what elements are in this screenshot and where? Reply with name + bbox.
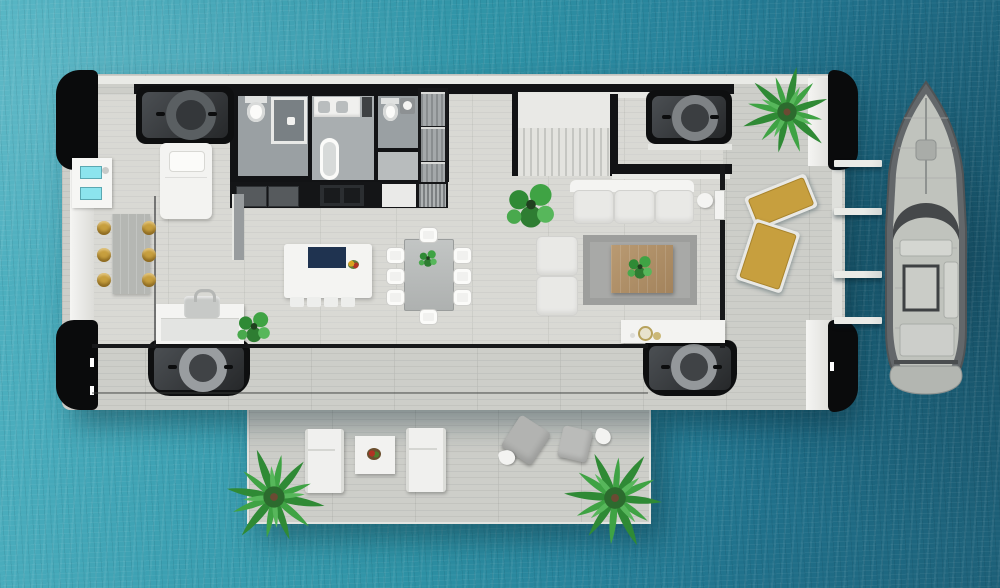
cyan-screen: [80, 166, 102, 179]
tech-unit-base-trim: [648, 144, 732, 150]
shower: [271, 97, 307, 144]
glass-wall-south: [92, 344, 648, 348]
hall-wall-face: [612, 174, 730, 179]
sink: [318, 101, 330, 113]
monstera-plant: [502, 178, 560, 236]
palm-tree: [734, 59, 840, 165]
cockpit-table: [904, 266, 938, 310]
appliance: [268, 186, 299, 207]
cabinet-basin: [161, 318, 239, 341]
hatch-circle: [671, 344, 717, 390]
closet-unit: [421, 127, 445, 161]
vanity: [314, 97, 360, 117]
palm-tree: [556, 439, 674, 557]
pillow: [169, 151, 205, 172]
hatch-handle: [168, 365, 177, 369]
hall-nook: [378, 152, 418, 180]
centerpiece-plant: [417, 248, 439, 270]
hall-wall-south: [610, 164, 732, 174]
daybed-mattress: [165, 177, 207, 214]
bar-stool: [97, 221, 111, 235]
bow-hatch: [916, 140, 936, 160]
chaise-cushion: [536, 236, 578, 276]
bar-stool: [142, 273, 156, 287]
pontoon-marker: [90, 358, 94, 367]
swim-platform: [890, 366, 962, 394]
east-edge-trim: [832, 166, 842, 322]
control-panel: [72, 158, 112, 208]
sofa-cushion: [573, 190, 614, 224]
hatch-handle: [208, 112, 217, 116]
toilet: [247, 102, 265, 122]
bathroom-left: [238, 96, 308, 176]
deck-seam: [92, 392, 648, 394]
glass-door: [714, 190, 725, 220]
island-stool: [290, 297, 304, 307]
tech-unit-bottom-left: [148, 340, 250, 396]
potted-plant: [234, 308, 274, 348]
hatch-handle: [662, 115, 671, 119]
burner: [344, 188, 360, 203]
sink: [400, 98, 415, 114]
dining-chair: [386, 247, 405, 264]
bar-stool: [142, 248, 156, 262]
bathtub: [320, 138, 339, 180]
dining-chair: [386, 289, 405, 306]
side-table: [697, 193, 713, 208]
fruit-bowl: [348, 260, 359, 269]
sofa-cushion: [614, 190, 655, 224]
decor-bowl: [653, 332, 661, 340]
hatch-handle: [224, 365, 233, 369]
panel-dial: [102, 167, 109, 174]
cyan-screen: [80, 187, 102, 200]
deck-table: [355, 436, 395, 474]
lounger-fold: [409, 448, 437, 450]
hatch-handle: [156, 112, 165, 116]
pontoon-marker: [830, 362, 834, 371]
decor-bowl: [630, 333, 635, 338]
stair-landing: [518, 94, 610, 128]
kitchen-counter: [230, 182, 448, 208]
boat: [870, 78, 982, 400]
cockpit-seat: [944, 262, 958, 318]
coffee-table-plant: [625, 253, 655, 283]
dining-chair: [419, 309, 438, 325]
bar-stool: [97, 273, 111, 287]
kitchen-island: [284, 244, 372, 298]
island-stool: [324, 297, 338, 307]
toilet: [383, 103, 398, 121]
bathroom-middle: [312, 96, 374, 180]
wall-pillar: [232, 194, 244, 260]
hatch-handle: [661, 365, 670, 369]
top-edge-trim: [88, 76, 834, 84]
island-stool: [341, 297, 355, 307]
shower-drain: [287, 117, 295, 125]
tech-unit-top-left: [136, 86, 234, 144]
hatch-handle: [713, 365, 722, 369]
decor-bowl: [638, 326, 653, 341]
closet-unit: [421, 92, 445, 126]
island-cooktop: [308, 247, 346, 268]
counter-vent: [419, 184, 446, 207]
staircase: [518, 128, 610, 176]
sofa-cushion: [655, 190, 694, 224]
burner: [324, 188, 340, 203]
bar-stool: [142, 221, 156, 235]
cooktop: [320, 185, 364, 206]
sink-bowl: [403, 101, 412, 110]
tech-unit-top-right: [646, 90, 732, 144]
palm-tree: [216, 439, 332, 555]
island-stool: [307, 297, 321, 307]
tech-unit-bottom-right: [643, 340, 737, 396]
vanity-appliance: [362, 97, 372, 117]
bathtub-basin: [323, 142, 336, 176]
chaise-cushion: [536, 276, 578, 316]
dining-chair: [386, 268, 405, 285]
sideboard: [621, 320, 725, 343]
cockpit-bench: [900, 240, 952, 256]
dining-chair: [453, 289, 472, 306]
bathroom-right: [378, 96, 418, 148]
daybed: [160, 143, 212, 219]
pontoon-top-left: [56, 70, 98, 170]
floorplan-scene: [0, 0, 1000, 588]
dining-chair: [453, 268, 472, 285]
counter-cabinet: [382, 184, 416, 207]
white-lounger: [406, 428, 446, 492]
dining-chair: [419, 227, 438, 243]
cooler-handle: [194, 289, 216, 302]
hatch-circle: [179, 344, 227, 392]
hatch-handle: [710, 115, 719, 119]
bar-stool: [97, 248, 111, 262]
sink: [336, 101, 348, 113]
dining-chair: [453, 247, 472, 264]
food-plate: [367, 448, 381, 460]
aft-sunpad: [900, 324, 954, 356]
